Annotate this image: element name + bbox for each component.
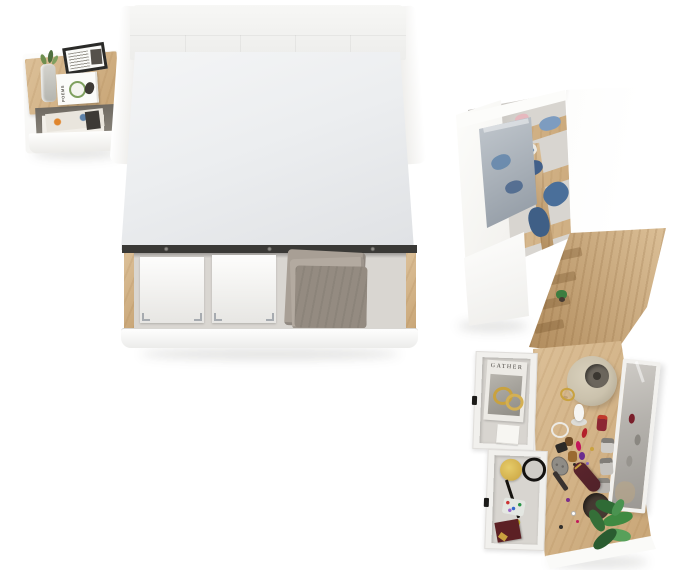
gold-cap [590, 447, 594, 451]
clutch-clasp [574, 463, 581, 470]
mattress [118, 50, 418, 255]
mirror-reflection-bottle [634, 434, 641, 446]
gather-magazine: GATHER [483, 360, 527, 423]
white-card-box [496, 424, 520, 445]
bed-drawer-front [121, 328, 418, 348]
bed [0, 0, 440, 360]
storage-box-1 [140, 257, 204, 323]
shelf-notch [545, 271, 576, 286]
lipstick [581, 428, 588, 439]
headboard [130, 5, 406, 60]
cosmetic-item [559, 525, 563, 529]
mirror-reflection-denim [503, 178, 524, 195]
shelf-plant-pot [559, 297, 565, 302]
wardrobe-top-panel [560, 84, 672, 240]
mirror-reflection-bottle [626, 455, 633, 467]
potted-plant [575, 485, 635, 560]
hand-mirror [522, 457, 547, 482]
nail-polish [579, 452, 585, 460]
drawer-handle [472, 396, 477, 405]
gift-box [494, 519, 521, 543]
cosmetic-jar [599, 458, 613, 476]
mirror-reflection-denim [489, 151, 513, 172]
folded-blanket [286, 251, 372, 333]
vanity-drawer-upper: GATHER [472, 351, 537, 451]
cosmetic-jar [601, 438, 615, 454]
bed-rail [122, 245, 417, 253]
gift-box-ribbon [498, 532, 508, 542]
cosmetic-item [576, 520, 579, 523]
drawer-handle [484, 498, 489, 507]
mirror-reflection-streak [635, 361, 645, 383]
vanity: GATHER [440, 320, 700, 570]
mirror-reflection-bottle [628, 413, 635, 424]
vanity-drawer-lower [484, 449, 547, 551]
shelf-notch [551, 247, 582, 262]
lamp-opening [585, 364, 609, 388]
gold-bangle [505, 393, 524, 411]
cosmetic-item [566, 498, 570, 502]
drawer-rim-right [406, 253, 416, 332]
magazine-title: GATHER [487, 363, 527, 372]
bedroom-furniture-top-view: POEMS [0, 0, 700, 570]
storage-box-2 [212, 255, 276, 323]
cosmetic-item [571, 511, 576, 516]
storage-drawer-open [124, 253, 416, 332]
amber-bottle [568, 451, 577, 462]
drawer-rim-left [124, 253, 134, 332]
lipstick [575, 441, 582, 452]
